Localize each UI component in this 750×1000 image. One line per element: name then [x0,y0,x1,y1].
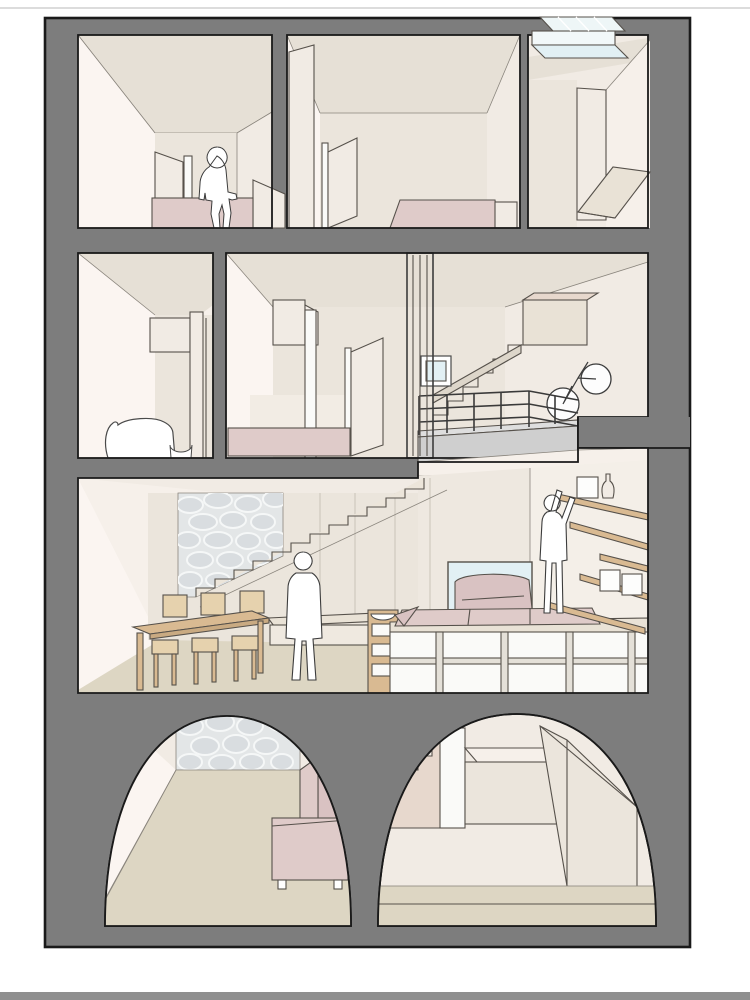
door-frame [322,143,328,228]
sofa-leg [278,880,286,889]
stair-top-tread [523,293,598,300]
window-glass [426,361,446,381]
top-floor [78,17,650,228]
box-on-shelf [600,570,620,591]
door-leaf [328,138,357,228]
vault-floor [375,886,660,931]
platform-divider [436,632,443,693]
bottom-page-bar [0,992,750,1000]
section-drawing [0,0,750,1000]
platform-divider [628,632,635,693]
bedroom-seated [78,35,285,228]
upper-cabinet [273,300,305,345]
bedroom-stair-hall [226,253,690,464]
chair-seat [232,636,258,650]
skylit-room [528,35,650,228]
wall-reflection [250,395,308,428]
bedroom-wardrobe [287,35,520,228]
illustration-page [0,0,750,1000]
vault-column [440,728,465,828]
chair-leg [234,650,238,681]
chair-leg [194,652,198,684]
white-armchair [106,418,175,458]
middle-floor [78,253,690,464]
cut-notch [578,417,690,448]
back-wall [528,80,577,228]
tall-cabinet [190,312,203,458]
chair-back-row [240,591,264,613]
sofa-seat [272,818,348,880]
storage-platform [390,618,648,693]
upper-cabinet [150,318,190,352]
chair-back-row [163,595,187,617]
platform-rail [390,658,648,664]
door-frame [184,156,192,198]
sofa-leg [334,880,342,889]
chair-leg [252,650,256,679]
chair-leg [172,654,176,685]
hall-window [421,356,451,386]
tall-wardrobe [289,45,314,228]
bed [152,198,253,228]
box-on-shelf [577,477,598,498]
chair-leg [154,654,158,687]
platform-divider [566,632,573,693]
chair-back-row [201,593,225,615]
skylight [532,17,628,58]
ceiling [287,35,520,113]
stair-box [523,300,587,345]
skylight-front [532,31,615,45]
chair-seat [152,640,178,654]
study-room [78,253,213,458]
platform-bed [228,428,350,456]
platform-divider [501,632,508,693]
bed [390,200,498,228]
door-leaf [351,338,383,456]
table-leg [258,621,263,673]
box-on-shelf [622,574,642,595]
chair-seat [192,638,218,652]
nightstand [495,202,517,228]
living-floor [78,448,648,693]
table-leg [137,633,143,690]
skylight-soffit [532,45,628,58]
chair-leg [212,652,216,682]
